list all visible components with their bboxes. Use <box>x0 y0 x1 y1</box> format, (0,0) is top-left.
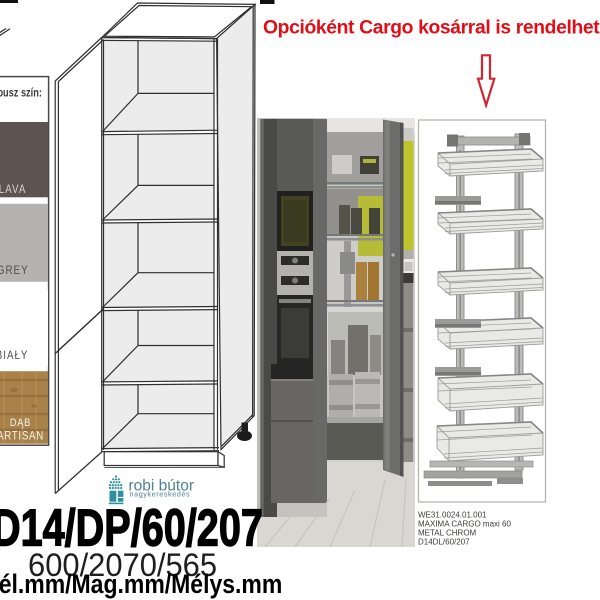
svg-text:WE31.0024.01.001: WE31.0024.01.001 <box>418 511 487 520</box>
svg-text:ARTISAN: ARTISAN <box>0 430 44 443</box>
svg-text:Szél.mm/Mag.mm/Mélys.mm: Szél.mm/Mag.mm/Mélys.mm <box>0 571 282 600</box>
svg-text:Opcióként Cargo kosárral is re: Opcióként Cargo kosárral is rendelhető <box>263 18 600 39</box>
svg-text:D14DL/60/207: D14DL/60/207 <box>418 538 470 547</box>
svg-text:MAXIMA CARGO maxi 60: MAXIMA CARGO maxi 60 <box>418 520 511 529</box>
svg-text:nagykereskedés: nagykereskedés <box>130 490 191 499</box>
svg-text:D14/DP/60/207: D14/DP/60/207 <box>0 498 263 556</box>
svg-text:GREY: GREY <box>0 264 29 277</box>
svg-text:Korpusz szín:: Korpusz szín: <box>0 88 42 100</box>
svg-text:DĄB: DĄB <box>10 417 31 429</box>
svg-text:METAL CHROM: METAL CHROM <box>418 529 477 538</box>
svg-text:LAVA: LAVA <box>0 183 26 196</box>
svg-text:BIAŁY: BIAŁY <box>0 349 28 362</box>
